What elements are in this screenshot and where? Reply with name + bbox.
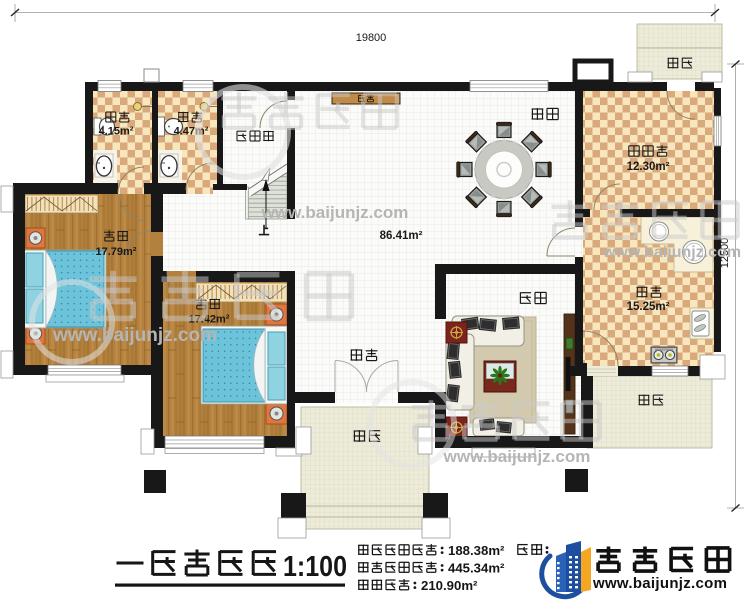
svg-text:19800: 19800 — [356, 32, 387, 44]
svg-text:1:100: 1:100 — [283, 551, 347, 583]
svg-text:17.79m²: 17.79m² — [96, 246, 137, 258]
svg-text:4.47m²: 4.47m² — [174, 126, 209, 138]
svg-text:15.25m²: 15.25m² — [627, 301, 670, 313]
svg-text:4.15m²: 4.15m² — [99, 126, 134, 138]
svg-text:www.baijunjz.com: www.baijunjz.com — [443, 447, 591, 466]
svg-text:188.38m²: 188.38m² — [448, 543, 505, 558]
svg-text:445.34m²: 445.34m² — [448, 561, 505, 576]
svg-text:www.baijunjz.com: www.baijunjz.com — [592, 575, 727, 592]
svg-text:www.baijunjz.com: www.baijunjz.com — [602, 244, 741, 261]
svg-text:12.30m²: 12.30m² — [627, 161, 670, 173]
svg-text:www.baijunjz.com: www.baijunjz.com — [52, 325, 217, 346]
svg-text:210.90m²: 210.90m² — [421, 578, 478, 593]
svg-text:86.41m²: 86.41m² — [380, 230, 423, 242]
svg-text:www.baijunjz.com: www.baijunjz.com — [261, 203, 409, 222]
